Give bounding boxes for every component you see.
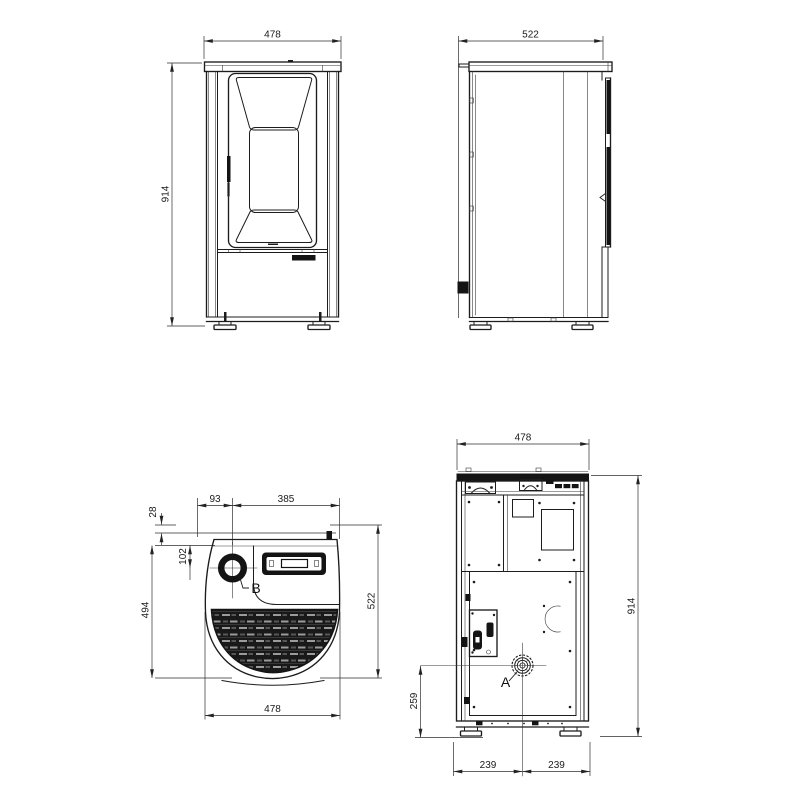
dim-top-total-depth: 522 xyxy=(367,592,378,609)
flue-top-label: B xyxy=(251,580,260,596)
front-feet xyxy=(214,322,330,330)
top-grille xyxy=(212,610,338,673)
flue-outlet-top xyxy=(210,542,257,598)
power-inlet xyxy=(458,282,469,294)
top-dimensions: 93 385 28 102 494 522 478 xyxy=(141,494,383,720)
front-body xyxy=(205,60,342,330)
dim-top-flue-x: 93 xyxy=(209,494,221,505)
side-body xyxy=(458,62,613,330)
dim-front-height: 914 xyxy=(161,185,172,202)
rear-body: A xyxy=(421,468,590,776)
rear-feet xyxy=(461,727,582,736)
control-display xyxy=(262,553,326,576)
top-view: 93 385 28 102 494 522 478 xyxy=(141,494,383,720)
rear-screws xyxy=(468,501,576,709)
dim-rear-flue-right: 239 xyxy=(548,760,565,771)
side-door-handle-notch xyxy=(600,194,606,202)
dim-top-rear-clearance: 28 xyxy=(148,506,159,518)
side-feet xyxy=(470,322,593,330)
side-view: 522 xyxy=(458,30,613,330)
front-view: 478 914 xyxy=(161,30,342,330)
door-glass xyxy=(236,78,312,246)
dim-rear-flue-height: 259 xyxy=(409,692,420,709)
stove-dimension-drawing: 478 914 xyxy=(0,0,800,800)
dim-top-remainder: 385 xyxy=(278,494,295,505)
dim-top-width: 478 xyxy=(264,704,281,715)
side-dimensions: 522 xyxy=(459,30,604,319)
dim-rear-flue-left: 239 xyxy=(480,760,497,771)
rear-view: 478 914 259 239 239 xyxy=(409,433,642,777)
flue-rear-label: A xyxy=(501,674,511,690)
door-handle xyxy=(227,156,231,182)
dim-side-depth: 522 xyxy=(522,30,539,41)
front-badge xyxy=(292,255,316,261)
air-outlet-knockout xyxy=(545,606,560,632)
flue-fan-outlet xyxy=(421,643,547,776)
technical-drawing-page: 478 914 xyxy=(0,0,800,800)
dim-rear-height: 914 xyxy=(627,597,638,614)
rear-tab xyxy=(327,531,333,540)
dim-top-flue-y: 102 xyxy=(178,548,189,565)
dim-front-width: 478 xyxy=(264,30,281,41)
rear-dimensions: 478 914 259 239 239 xyxy=(409,433,642,777)
dim-top-body-depth: 494 xyxy=(141,601,152,618)
top-body: B xyxy=(205,531,339,685)
dim-rear-width: 478 xyxy=(515,433,532,444)
